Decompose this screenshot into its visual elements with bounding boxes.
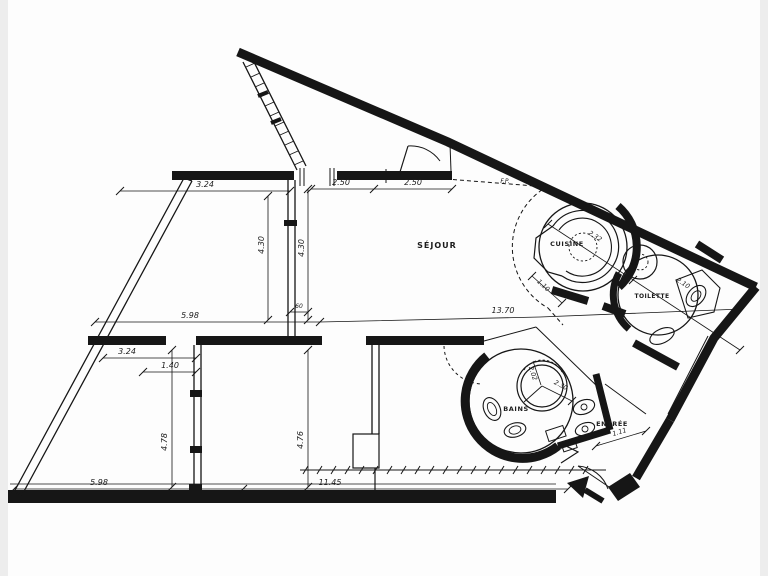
wall-middle-c <box>366 336 484 345</box>
dim-top-left-width: 3.24 <box>196 180 214 189</box>
bains-sink-2-inner <box>508 425 522 436</box>
wall-middle-a <box>88 336 166 345</box>
dim-left-room-depth: 4.30 <box>257 236 266 254</box>
room-cuisine <box>446 179 637 325</box>
sejour-door-leaf <box>400 146 408 172</box>
cuisine-counter-facets <box>534 226 562 276</box>
dim-top-bay-2: 2.50 <box>404 178 422 187</box>
dim-left-room-width: 5.98 <box>181 311 199 320</box>
room-labels: SÉJOUR CUISINE TOILETTE BAINS ENTRÉE F.P… <box>417 178 669 428</box>
partition-hinge-block <box>284 220 297 226</box>
closet <box>353 434 379 468</box>
bains-sink-2 <box>503 420 528 439</box>
page-edge-left <box>0 0 8 576</box>
bains-shelf-1 <box>546 426 567 442</box>
dim-lower-left-door: 1.40 <box>161 361 179 370</box>
entrance-arrow-tail <box>585 490 603 501</box>
wall-top-interior-a <box>172 171 294 180</box>
glazed-strip-mullions <box>258 92 281 123</box>
partition-block-3 <box>189 484 202 492</box>
dim-lower-left-width: 3.24 <box>118 347 136 356</box>
bidet <box>647 324 676 348</box>
toilet-bowl-inner <box>689 289 703 303</box>
label-flue: F.P. <box>500 178 509 185</box>
dim-overall-length: 13.70 <box>492 306 515 315</box>
cuisine-sliding-door-dashed <box>446 179 563 325</box>
room-label-bains: BAINS <box>503 405 529 413</box>
dim-tub-chord: 2.02 <box>527 365 539 381</box>
wall-outer-right-lower <box>636 420 670 478</box>
sejour-door-swing <box>408 146 440 161</box>
floor-plan: 3.24 2.50 2.50 5.98 13.70 3.24 1.40 5.98… <box>0 0 768 576</box>
room-label-cuisine: CUISINE <box>550 240 584 248</box>
room-label-entree: ENTRÉE <box>596 419 628 428</box>
corridor-walls <box>484 327 646 414</box>
wall-top-interior-b <box>337 171 452 180</box>
tub-radius-line <box>524 386 542 402</box>
dim-small: 60 <box>295 303 303 310</box>
dim-cuisine-width: 2.32 <box>587 229 604 244</box>
niche-fixture-1-inner <box>581 404 587 410</box>
dim-top-bay-1: 2.50 <box>332 178 350 187</box>
wall-outer-top <box>238 52 756 287</box>
niche-fixture-1 <box>571 397 596 418</box>
dim-bottom-left-width: 5.98 <box>90 478 108 487</box>
bains-sink-1-inner <box>485 401 498 417</box>
dim-lower-left-depth: 4.78 <box>160 433 169 451</box>
partition-block-2 <box>190 446 202 453</box>
dim-sejour-depth: 4.30 <box>297 239 306 257</box>
outer-walls <box>8 52 756 503</box>
dim-toilette-width: 2.10 <box>675 276 692 291</box>
page-edge-right <box>760 0 768 576</box>
wall-outer-right <box>670 287 756 420</box>
niche-fixture-2-inner <box>582 426 588 432</box>
partition-lower-left <box>194 345 201 490</box>
partition-lower-mid <box>372 345 379 434</box>
room-bains <box>465 349 610 458</box>
bains-sink-1 <box>480 395 505 424</box>
dim-lower-mid-depth: 4.76 <box>296 431 305 449</box>
partition-sejour-left <box>288 180 295 338</box>
room-label-toilette: TOILETTE <box>635 293 670 300</box>
window-line-right <box>668 336 708 414</box>
wall-middle-b <box>196 336 322 345</box>
room-label-sejour: SÉJOUR <box>417 239 457 250</box>
wall-outer-bottom <box>8 490 556 503</box>
partition-block-1 <box>190 390 202 397</box>
dim-bottom-main-width: 11.45 <box>319 478 342 487</box>
